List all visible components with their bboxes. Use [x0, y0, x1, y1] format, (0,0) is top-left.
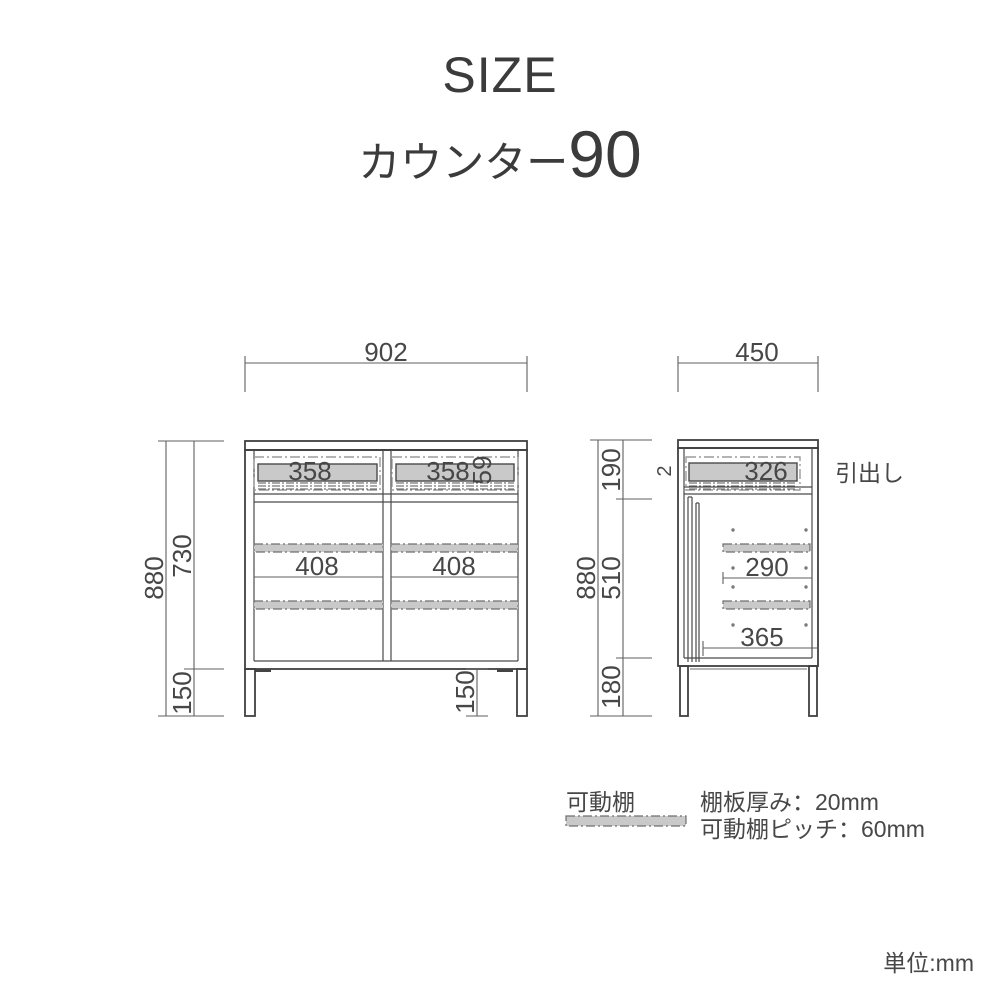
front-drawer-right-width-value: 358	[426, 456, 469, 486]
front-shelf-left-width-value: 408	[295, 551, 338, 581]
unit-label: 単位:mm	[883, 950, 974, 976]
front-leg-left	[245, 669, 255, 716]
front-shelf-right-width-value: 408	[432, 551, 475, 581]
side-middle-section-value: 510	[596, 556, 626, 599]
front-shelf-width-dimensions	[254, 573, 518, 581]
legend: 可動棚 棚板厚み：20mm 可動棚ピッチ：60mm	[566, 789, 925, 842]
side-partial-digit: 2	[654, 465, 676, 476]
side-view: 450 880 190 510 180 2	[571, 337, 904, 716]
front-view: 902 880 730 150	[139, 337, 527, 716]
front-width-value: 902	[364, 337, 407, 367]
side-drawer-depth-value: 326	[744, 456, 787, 486]
side-top-section-value: 190	[596, 448, 626, 491]
front-leg-height-value: 150	[167, 671, 197, 714]
side-door-edges	[688, 497, 699, 662]
front-total-height-value: 880	[139, 556, 169, 599]
size-diagram-page: SIZE カウンター90 902 880 730 150	[0, 0, 1000, 1000]
front-legs	[245, 669, 527, 716]
technical-drawing: 902 880 730 150	[0, 0, 1000, 1000]
side-countertop	[678, 440, 818, 448]
side-shelf-depth-value: 290	[745, 552, 788, 582]
side-legs	[680, 666, 817, 716]
front-body-height-value: 730	[167, 534, 197, 577]
shelf-thickness-note: 棚板厚み：20mm	[700, 789, 879, 815]
side-bottom-section-value: 180	[596, 665, 626, 708]
front-leg-height-right-value: 150	[450, 670, 480, 713]
movable-shelf-swatch	[566, 816, 686, 826]
side-leg-front	[680, 666, 688, 716]
front-drawer-left-width-value: 358	[288, 456, 331, 486]
side-interior-depth-value: 365	[740, 622, 783, 652]
movable-shelf-label: 可動棚	[566, 789, 635, 815]
front-leg-right	[517, 669, 527, 716]
side-depth-value: 450	[735, 337, 778, 367]
front-drawer-height-value: 59	[467, 456, 497, 485]
front-countertop	[245, 441, 527, 450]
drawer-callout-label: 引出し	[835, 460, 904, 486]
side-leg-back	[809, 666, 817, 716]
shelf-pitch-note: 可動棚ピッチ：60mm	[700, 816, 925, 842]
